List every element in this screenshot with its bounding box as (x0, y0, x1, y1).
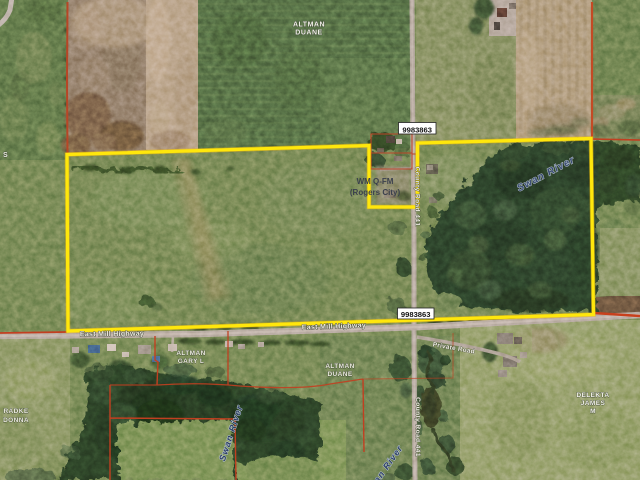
svg-text:ALTMAN: ALTMAN (325, 363, 354, 370)
svg-text:(Rogers City): (Rogers City) (350, 188, 401, 197)
svg-text:County Road 441: County Road 441 (414, 167, 421, 227)
svg-text:S: S (3, 152, 8, 159)
svg-text:DONNA: DONNA (3, 417, 29, 424)
svg-text:GARY L: GARY L (178, 358, 205, 365)
svg-text:DUANE: DUANE (295, 30, 322, 37)
svg-text:ALTMAN: ALTMAN (293, 22, 325, 29)
svg-text:DELEKTA: DELEKTA (576, 392, 609, 399)
svg-text:ALTMAN: ALTMAN (176, 350, 205, 357)
svg-text:East Mill Highway: East Mill Highway (80, 331, 144, 339)
svg-text:RADKE: RADKE (3, 408, 28, 415)
svg-text:DUANE: DUANE (327, 371, 352, 378)
svg-text:9983863: 9983863 (402, 126, 432, 135)
svg-text:M: M (590, 408, 596, 415)
svg-text:County Road 441: County Road 441 (414, 397, 421, 457)
svg-text:9983863: 9983863 (401, 310, 431, 319)
svg-text:WM Q-FM: WM Q-FM (357, 177, 394, 186)
svg-text:JAMES: JAMES (581, 400, 606, 407)
